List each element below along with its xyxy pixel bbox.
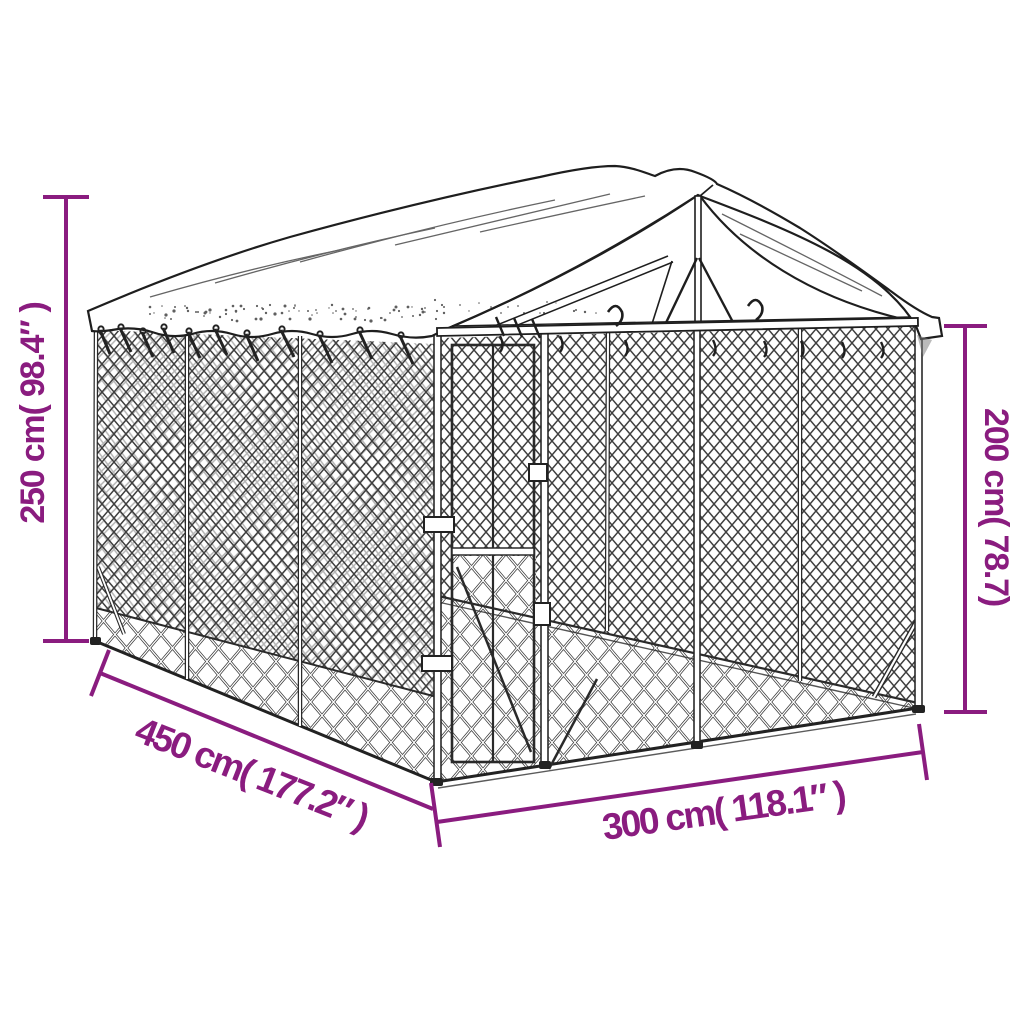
svg-text:250 cm( 98.4″ ): 250 cm( 98.4″ )	[14, 302, 52, 523]
svg-text:200 cm( 78.7): 200 cm( 78.7)	[977, 408, 1015, 606]
